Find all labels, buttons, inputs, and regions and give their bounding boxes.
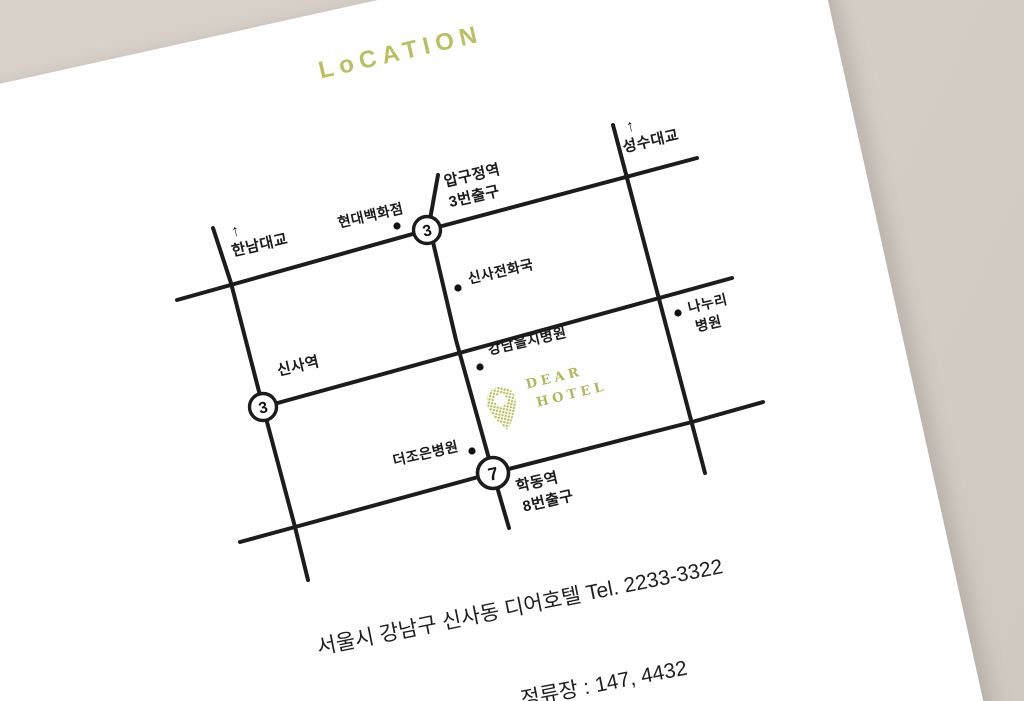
photo-scene: 3 3 7 LoCATION ↑ 성수대교 압구정역 3번출구 현대백화점 ↑ … (0, 0, 1024, 701)
poi-dot-nanoori (674, 309, 681, 316)
location-pin-icon (484, 384, 522, 434)
poi-dot-gangnam-eulji (476, 363, 483, 370)
poi-dot-sinsa-telephone (454, 284, 461, 291)
poi-dot-thejoeun (468, 447, 475, 454)
poi-dot-hyundai (393, 222, 400, 229)
